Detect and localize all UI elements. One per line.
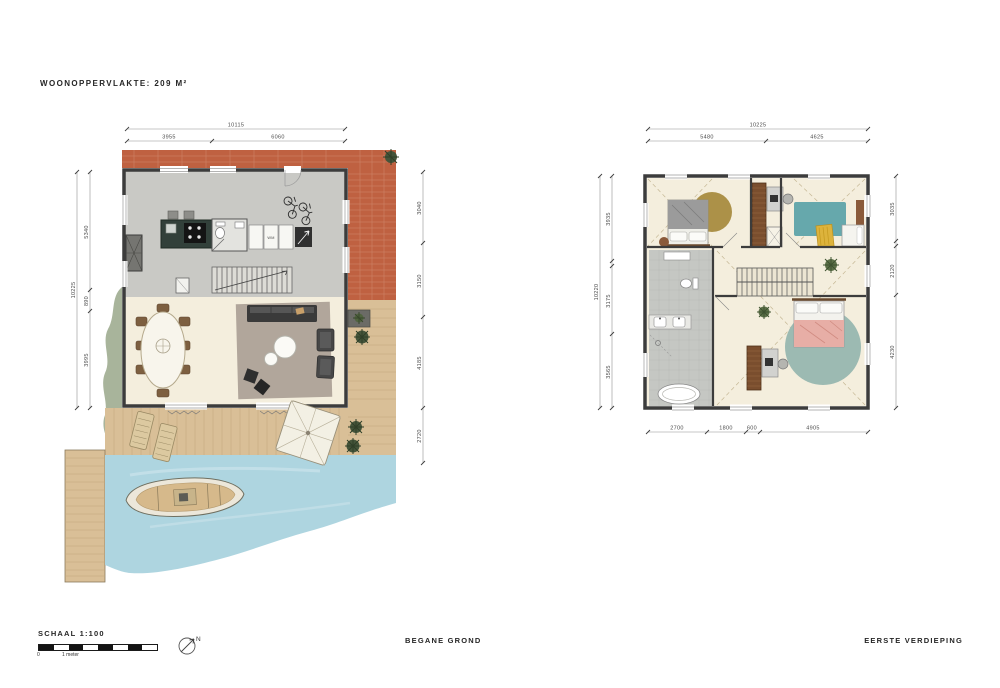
dimension-lines-right: 3035 2120 4230 (890, 174, 898, 410)
dim-label: 10225 (750, 123, 767, 129)
cooktop (184, 223, 206, 243)
pouf (659, 237, 669, 247)
north-label: N (196, 636, 201, 643)
blanket (794, 320, 844, 347)
bar-stool (184, 211, 194, 219)
ground-floor-caption: BEGANE GROND (405, 636, 482, 645)
plant-icon (345, 438, 361, 454)
dimension-lines-left: 10225 5340 890 3995 (71, 170, 92, 410)
dim-label: 890 (84, 296, 90, 306)
double-bed (792, 300, 846, 348)
dim-label: 5340 (84, 225, 90, 238)
dim-label: 2720 (417, 429, 423, 442)
dim-label: 3040 (417, 201, 423, 214)
plant-icon (757, 305, 771, 319)
pillow (796, 303, 818, 313)
dim-label: 4185 (417, 356, 423, 369)
dim-label: 3955 (162, 135, 175, 141)
pillow (857, 227, 862, 244)
ground-floor-plan: WM (60, 115, 460, 585)
pillow (670, 232, 687, 241)
dimension-lines-left: 10220 3935 3175 3565 (594, 174, 614, 410)
desk-chair (783, 194, 793, 204)
appliances: WM (249, 225, 312, 249)
bar-stool (168, 211, 178, 219)
dim-label: 4625 (810, 135, 823, 141)
page-title: WOONOPPERVLAKTE: 209 M² (40, 79, 188, 88)
sofa (247, 305, 317, 322)
plant-icon (823, 257, 839, 273)
toilet (216, 228, 225, 239)
north-arrow-icon: N (176, 632, 206, 660)
dim-label: 3995 (84, 353, 90, 366)
dim-label: 3935 (606, 212, 612, 225)
scale-meter-label: 1 meter (62, 652, 79, 658)
lounge-area (236, 302, 335, 399)
dim-label: 10225 (71, 282, 77, 299)
wc-room (212, 219, 247, 251)
dimension-lines-top: 10225 5480 4625 (646, 123, 870, 144)
coffee-table (274, 336, 296, 358)
dock (65, 450, 105, 582)
staircase (737, 268, 813, 296)
plant-icon (354, 329, 370, 345)
shelf (856, 200, 864, 225)
laptop (770, 195, 778, 202)
dim-label: 3035 (890, 202, 896, 215)
scale-bar (38, 644, 158, 651)
dining-chair (136, 317, 147, 326)
dining-chair (157, 389, 169, 397)
bed (666, 200, 710, 246)
laptop (765, 358, 773, 366)
staircase (212, 267, 292, 293)
armchair-cushion (320, 332, 331, 348)
dim-label: 2700 (670, 426, 683, 432)
dimension-lines-top: 10115 3955 6060 (125, 123, 347, 144)
dim-label: 10220 (594, 284, 600, 301)
dimension-lines-bottom: 2700 1800 600 4905 (646, 426, 870, 435)
dim-label: 5480 (700, 135, 713, 141)
dim-label: 6060 (271, 135, 284, 141)
side-table (265, 353, 278, 366)
dim-label: 10115 (228, 123, 244, 129)
scale-label: SCHAAL 1:100 (38, 629, 105, 638)
dim-label: 4230 (890, 345, 896, 358)
meter-closet (176, 278, 189, 293)
dim-label: 2120 (890, 264, 896, 277)
dim-label: 3150 (417, 274, 423, 287)
sink (166, 224, 176, 233)
wardrobe (752, 183, 766, 247)
pillow (689, 232, 706, 241)
dim-label: 3565 (606, 365, 612, 378)
dim-label: 600 (747, 426, 757, 432)
dining-chair (157, 304, 169, 312)
tall-cabinet (126, 235, 142, 271)
first-floor-plan: 10225 5480 4625 10220 3935 3175 3565 303… (580, 115, 920, 445)
desk-chair (778, 359, 788, 369)
dining-chair (179, 317, 190, 326)
yellow-pouf (816, 224, 834, 248)
scale-zero-label: 0 (37, 652, 40, 658)
wardrobe (747, 346, 761, 390)
dim-label: 3175 (606, 294, 612, 307)
bathtub (658, 384, 700, 404)
first-floor-caption: EERSTE VERDIEPING (845, 636, 963, 645)
hand-basin (235, 222, 244, 228)
dim-label: 1800 (719, 426, 732, 432)
plant-icon (348, 419, 364, 435)
toilet (681, 279, 692, 288)
dim-label: 4905 (806, 426, 819, 432)
radiator (664, 252, 690, 260)
dimension-lines-right: 3040 3150 4185 2720 (417, 170, 425, 465)
armchair-cushion (320, 359, 332, 376)
washing-machine-label: WM (267, 236, 274, 240)
pillow (820, 303, 842, 313)
